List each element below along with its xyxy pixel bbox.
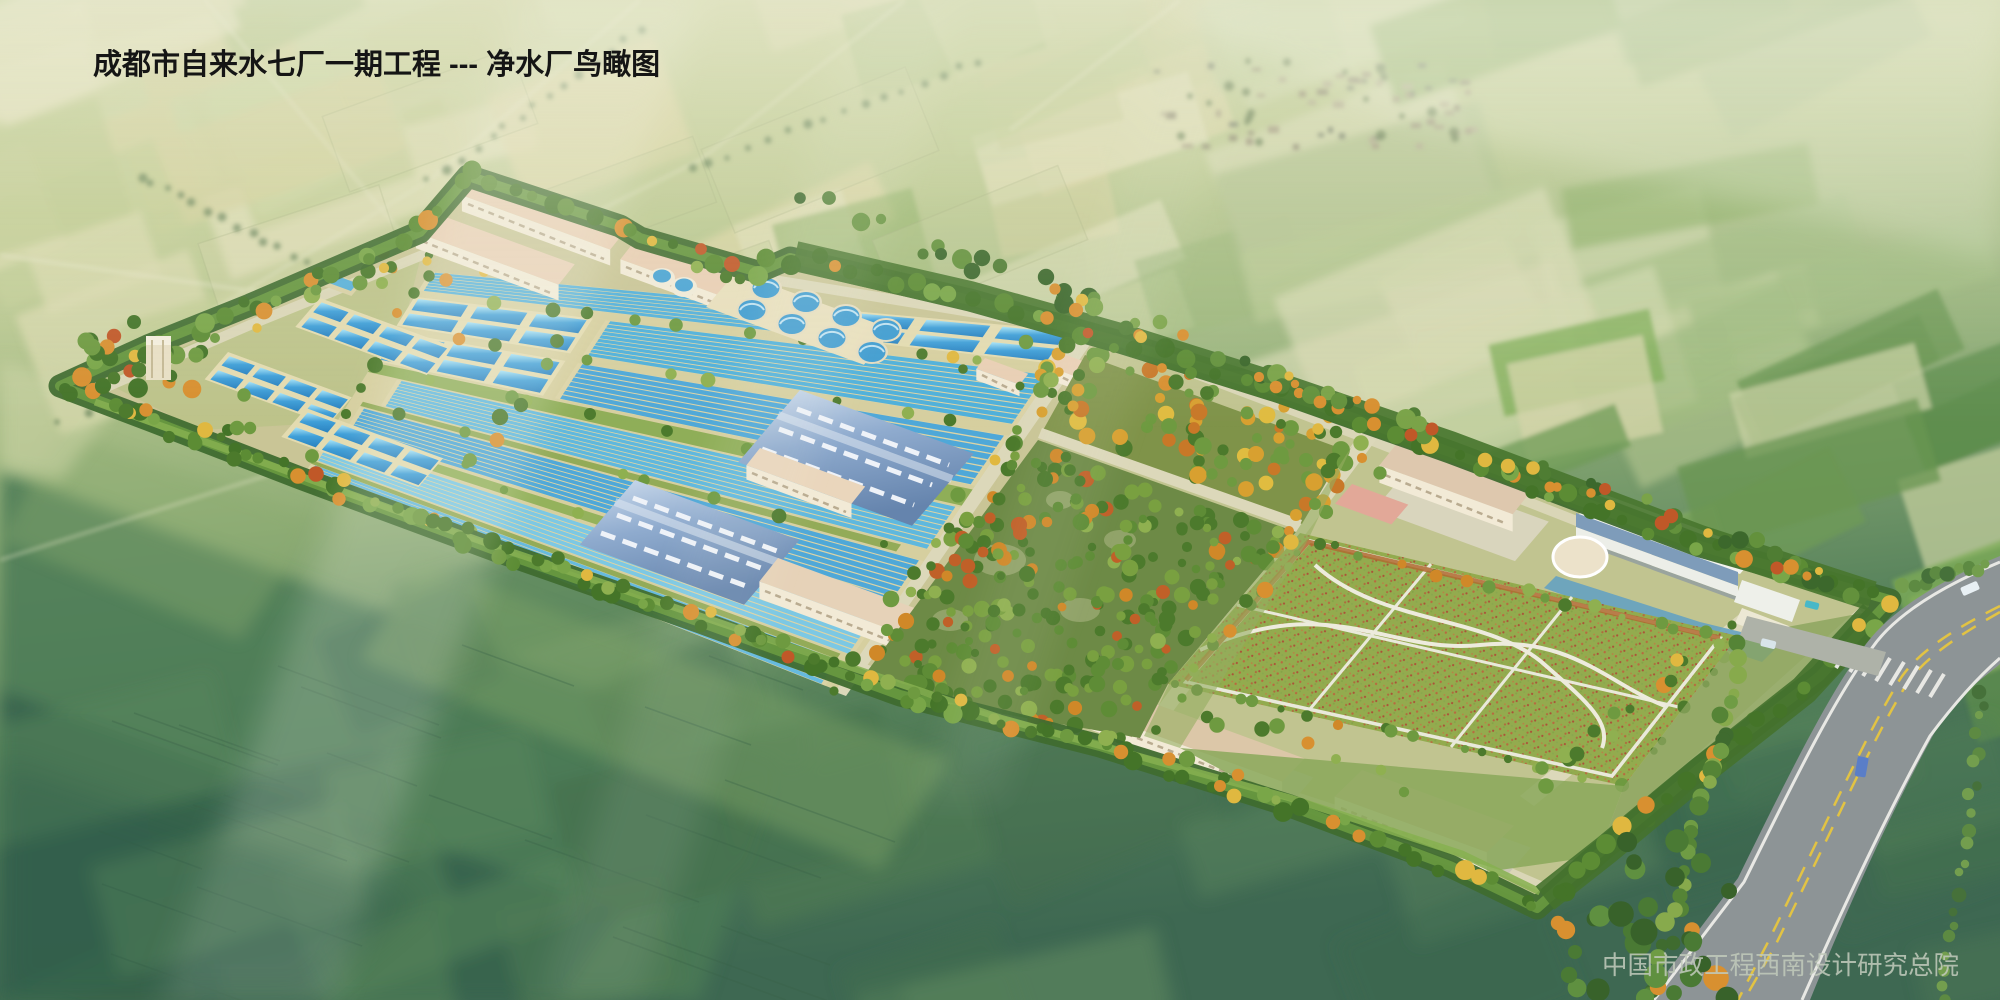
svg-text:中国市政工程西南设计研究总院: 中国市政工程西南设计研究总院	[1602, 952, 1959, 980]
svg-text:成都市自来水七厂一期工程 --- 净水厂鸟瞰图: 成都市自来水七厂一期工程 --- 净水厂鸟瞰图	[93, 47, 660, 81]
